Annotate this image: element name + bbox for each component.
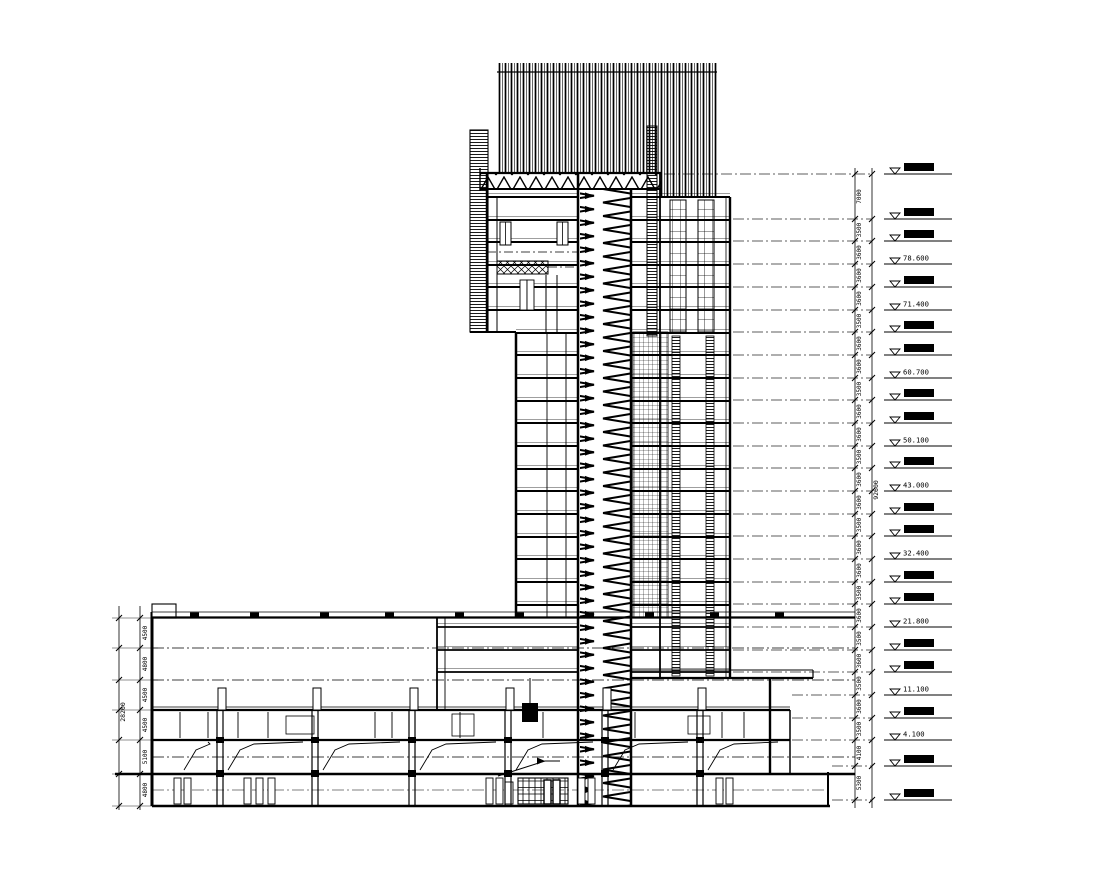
svg-text:43.000: 43.000 <box>903 481 929 490</box>
level-marker: 60.700 <box>733 368 952 382</box>
level-marker <box>733 525 952 539</box>
svg-text:3600: 3600 <box>856 699 863 714</box>
svg-text:3600: 3600 <box>856 495 863 510</box>
stair-zigzag <box>580 190 630 806</box>
level-marker: 71.400 <box>733 300 952 314</box>
svg-text:3500: 3500 <box>856 721 863 736</box>
svg-text:60.700: 60.700 <box>903 368 929 377</box>
level-marker <box>832 789 952 803</box>
svg-text:3600: 3600 <box>856 653 863 668</box>
level-marker <box>832 755 952 769</box>
level-marker <box>733 661 952 675</box>
level-marker <box>733 230 952 244</box>
svg-text:4500: 4500 <box>142 687 149 702</box>
svg-text:3500: 3500 <box>856 381 863 396</box>
svg-text:3500: 3500 <box>856 449 863 464</box>
level-marker <box>733 389 952 403</box>
svg-text:3600: 3600 <box>856 427 863 442</box>
level-marker <box>733 276 952 290</box>
svg-text:4500: 4500 <box>142 625 149 640</box>
svg-text:3600: 3600 <box>856 563 863 578</box>
svg-text:3500: 3500 <box>856 585 863 600</box>
svg-text:92600: 92600 <box>872 480 880 500</box>
svg-text:4800: 4800 <box>142 656 149 671</box>
level-marker: 78.600 <box>733 254 952 268</box>
svg-text:3600: 3600 <box>856 359 863 374</box>
svg-text:4800: 4800 <box>142 782 149 797</box>
svg-text:3500: 3500 <box>856 676 863 691</box>
svg-text:7000: 7000 <box>856 189 863 204</box>
level-marker <box>733 321 952 335</box>
svg-text:78.600: 78.600 <box>903 254 929 263</box>
svg-text:3500: 3500 <box>856 631 863 646</box>
level-marker: 32.400 <box>733 549 952 563</box>
level-marker <box>733 571 952 585</box>
svg-text:4100: 4100 <box>856 745 863 760</box>
svg-text:71.400: 71.400 <box>903 300 929 309</box>
svg-text:3600: 3600 <box>856 268 863 283</box>
svg-text:3600: 3600 <box>856 472 863 487</box>
svg-text:32.400: 32.400 <box>903 549 929 558</box>
drawing-sheet: 78.60071.40060.70050.10043.00032.40021.8… <box>0 0 1110 883</box>
level-marker: 43.000 <box>733 481 952 495</box>
svg-text:3600: 3600 <box>856 245 863 260</box>
level-marker <box>733 344 952 358</box>
section-drawing-svg: 78.60071.40060.70050.10043.00032.40021.8… <box>0 0 1110 883</box>
svg-text:3600: 3600 <box>856 336 863 351</box>
svg-text:5300: 5300 <box>856 775 863 790</box>
svg-text:11.100: 11.100 <box>903 685 929 694</box>
svg-text:50.100: 50.100 <box>903 436 929 445</box>
level-marker <box>733 457 952 471</box>
svg-text:3600: 3600 <box>856 291 863 306</box>
svg-text:3600: 3600 <box>856 540 863 555</box>
svg-text:5100: 5100 <box>142 749 149 764</box>
svg-text:3500: 3500 <box>856 313 863 328</box>
right-dims-layer: 7000350036003600360035003600360035003600… <box>856 189 880 790</box>
level-marker <box>733 208 952 222</box>
svg-text:28200: 28200 <box>119 702 127 722</box>
svg-text:4.100: 4.100 <box>903 730 925 739</box>
svg-text:3600: 3600 <box>856 404 863 419</box>
svg-text:3600: 3600 <box>856 608 863 623</box>
svg-text:21.800: 21.800 <box>903 617 929 626</box>
svg-text:3500: 3500 <box>856 517 863 532</box>
level-marker <box>733 593 952 607</box>
level-marker: 50.100 <box>733 436 952 450</box>
level-marker <box>733 639 952 653</box>
svg-text:3500: 3500 <box>856 222 863 237</box>
level-marker <box>733 503 952 517</box>
level-marker <box>733 412 952 426</box>
svg-text:4500: 4500 <box>142 717 149 732</box>
